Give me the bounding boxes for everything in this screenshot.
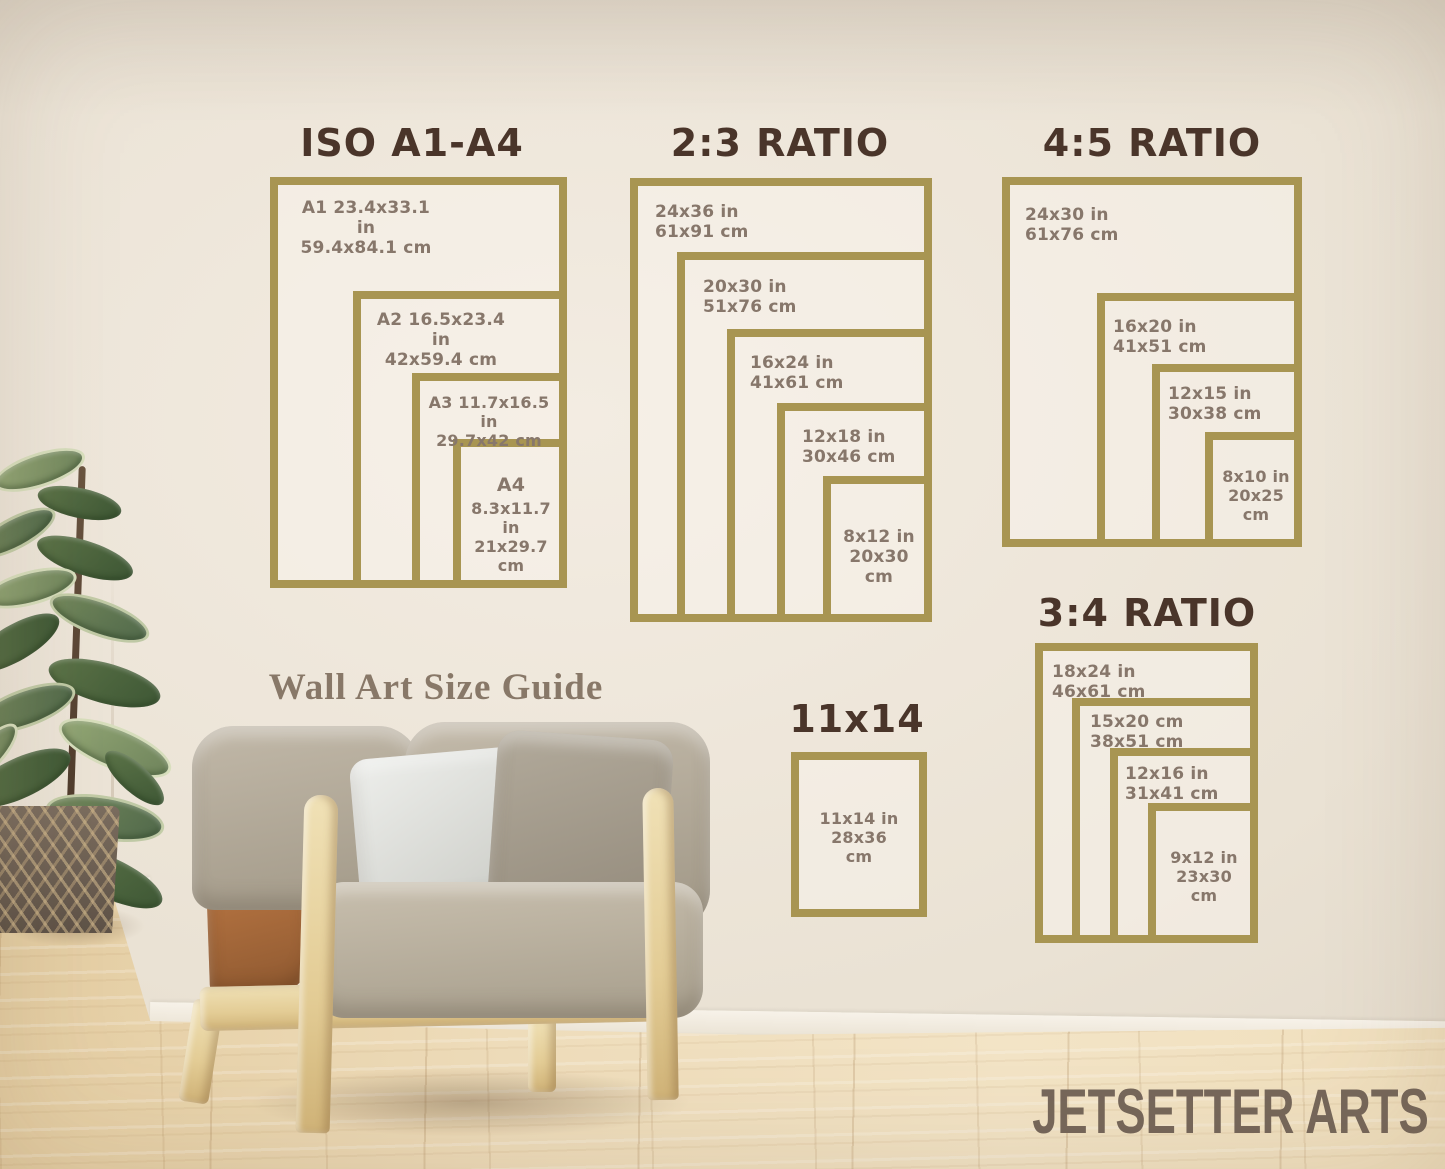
section-title-11x14: 11x14 [789,700,924,738]
size-label-12x18: 12x18 in 30x46 cm [802,427,896,467]
size-label-8x10: 8x10 in 20x25 cm [1211,468,1301,525]
size-label-16x20: 16x20 in 41x51 cm [1113,317,1207,357]
size-label-24x36: 24x36 in 61x91 cm [655,202,749,242]
wall-art-size-guide-mockup: ISO A1-A4 A1 23.4x33.1 in 59.4x84.1 cm A… [0,0,1445,1169]
size-label-a3: A3 11.7x16.5 in 29.7x42 cm [422,394,556,451]
section-title-4-5: 4:5 RATIO [1043,124,1261,162]
size-label-11x14: 11x14 in 28x36 cm [809,810,909,867]
size-label-8x12: 8x12 in 20x30 cm [834,527,924,587]
chair-middle-leg [528,1018,556,1092]
size-label-16x24: 16x24 in 41x61 cm [750,353,844,393]
section-4-5: 24x30 in 61x76 cm 16x20 in 41x51 cm 12x1… [1002,177,1302,547]
size-label-a1: A1 23.4x33.1 in 59.4x84.1 cm [295,198,437,258]
size-label-a2: A2 16.5x23.4 in 42x59.4 cm [370,310,512,370]
section-3-4: 18x24 in 46x61 cm 15x20 cm 38x51 cm 12x1… [1035,643,1258,943]
size-label-12x16: 12x16 in 31x41 cm [1125,764,1219,804]
section-2-3: 24x36 in 61x91 cm 20x30 in 51x76 cm 16x2… [630,178,932,622]
section-title-3-4: 3:4 RATIO [1038,594,1256,632]
section-11x14: 11x14 in 28x36 cm [791,752,927,917]
section-iso: A1 23.4x33.1 in 59.4x84.1 cm A2 16.5x23.… [270,177,567,588]
size-label-12x15: 12x15 in 30x38 cm [1168,384,1262,424]
section-title-2-3: 2:3 RATIO [671,124,889,162]
brand-watermark: JETSETTER ARTS [1032,1076,1429,1148]
size-label-15x20: 15x20 cm 38x51 cm [1090,712,1184,752]
size-label-9x12: 9x12 in 23x30 cm [1159,849,1249,906]
chair-arm-post-right [642,788,678,1100]
guide-caption: Wall Art Size Guide [269,666,604,709]
section-title-iso: ISO A1-A4 [300,124,524,162]
size-label-20x30: 20x30 in 51x76 cm [703,277,797,317]
size-label-24x30: 24x30 in 61x76 cm [1025,205,1119,245]
size-label-18x24: 18x24 in 46x61 cm [1052,662,1146,702]
size-label-a4: A4 8.3x11.7 in 21x29.7 cm [466,474,556,576]
